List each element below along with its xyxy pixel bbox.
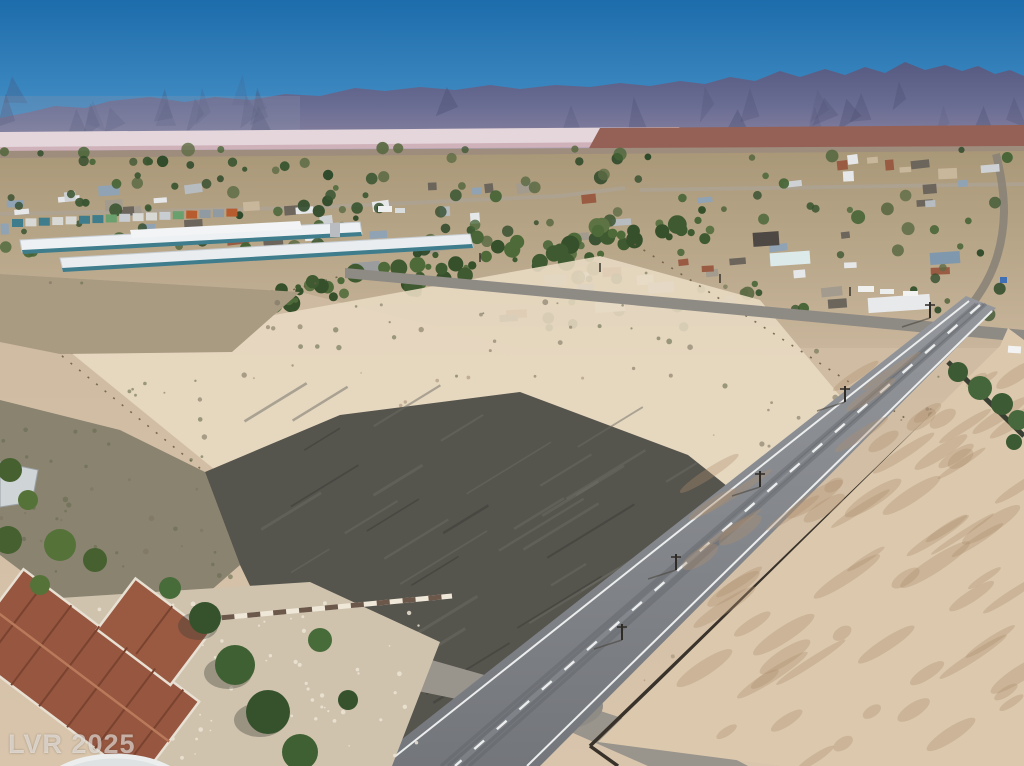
aerial-photo-canvas [0,0,1024,766]
watermark: LVR 2025 [8,729,136,760]
aerial-photo: LVR 2025 [0,0,1024,766]
